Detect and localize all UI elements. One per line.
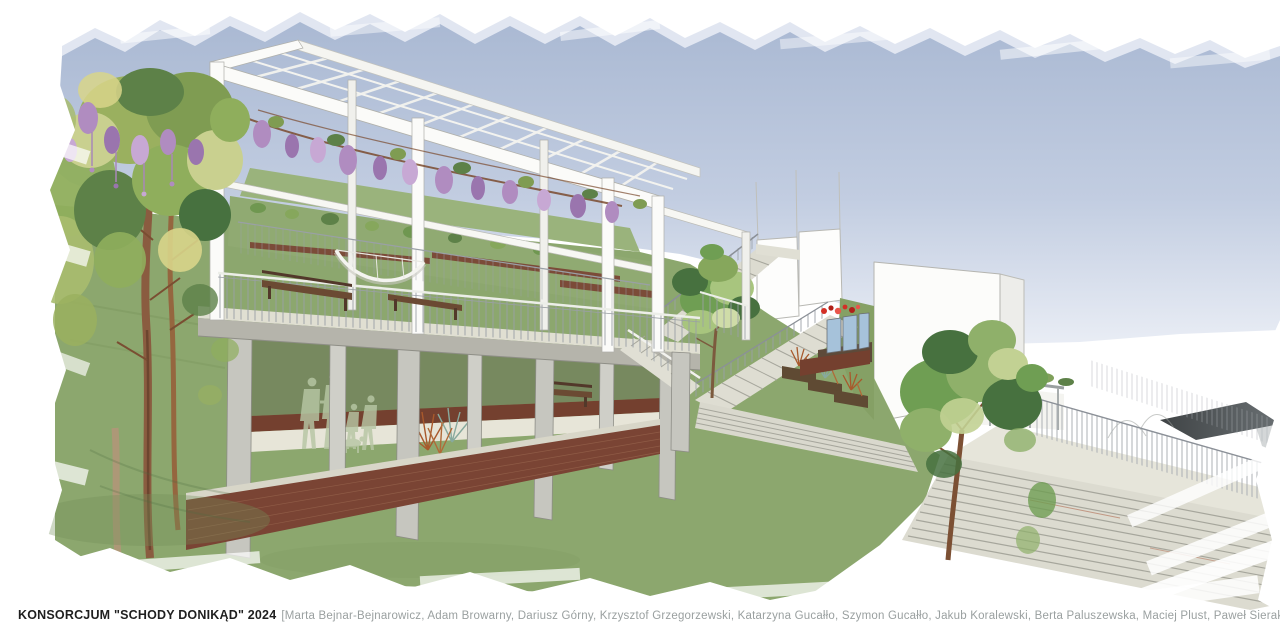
caption-project-title: KONSORCJUM "SCHODY DONIKĄD" 2024 — [18, 608, 276, 622]
caption-credits: [Marta Bejnar-Bejnarowicz, Adam Browarny… — [281, 610, 1280, 622]
artwork-canvas — [0, 0, 1280, 631]
architectural-rendering-page: KONSORCJUM "SCHODY DONIKĄD" 2024[Marta B… — [0, 0, 1280, 631]
caption: KONSORCJUM "SCHODY DONIKĄD" 2024[Marta B… — [18, 608, 1268, 622]
building-small-right — [799, 229, 842, 306]
